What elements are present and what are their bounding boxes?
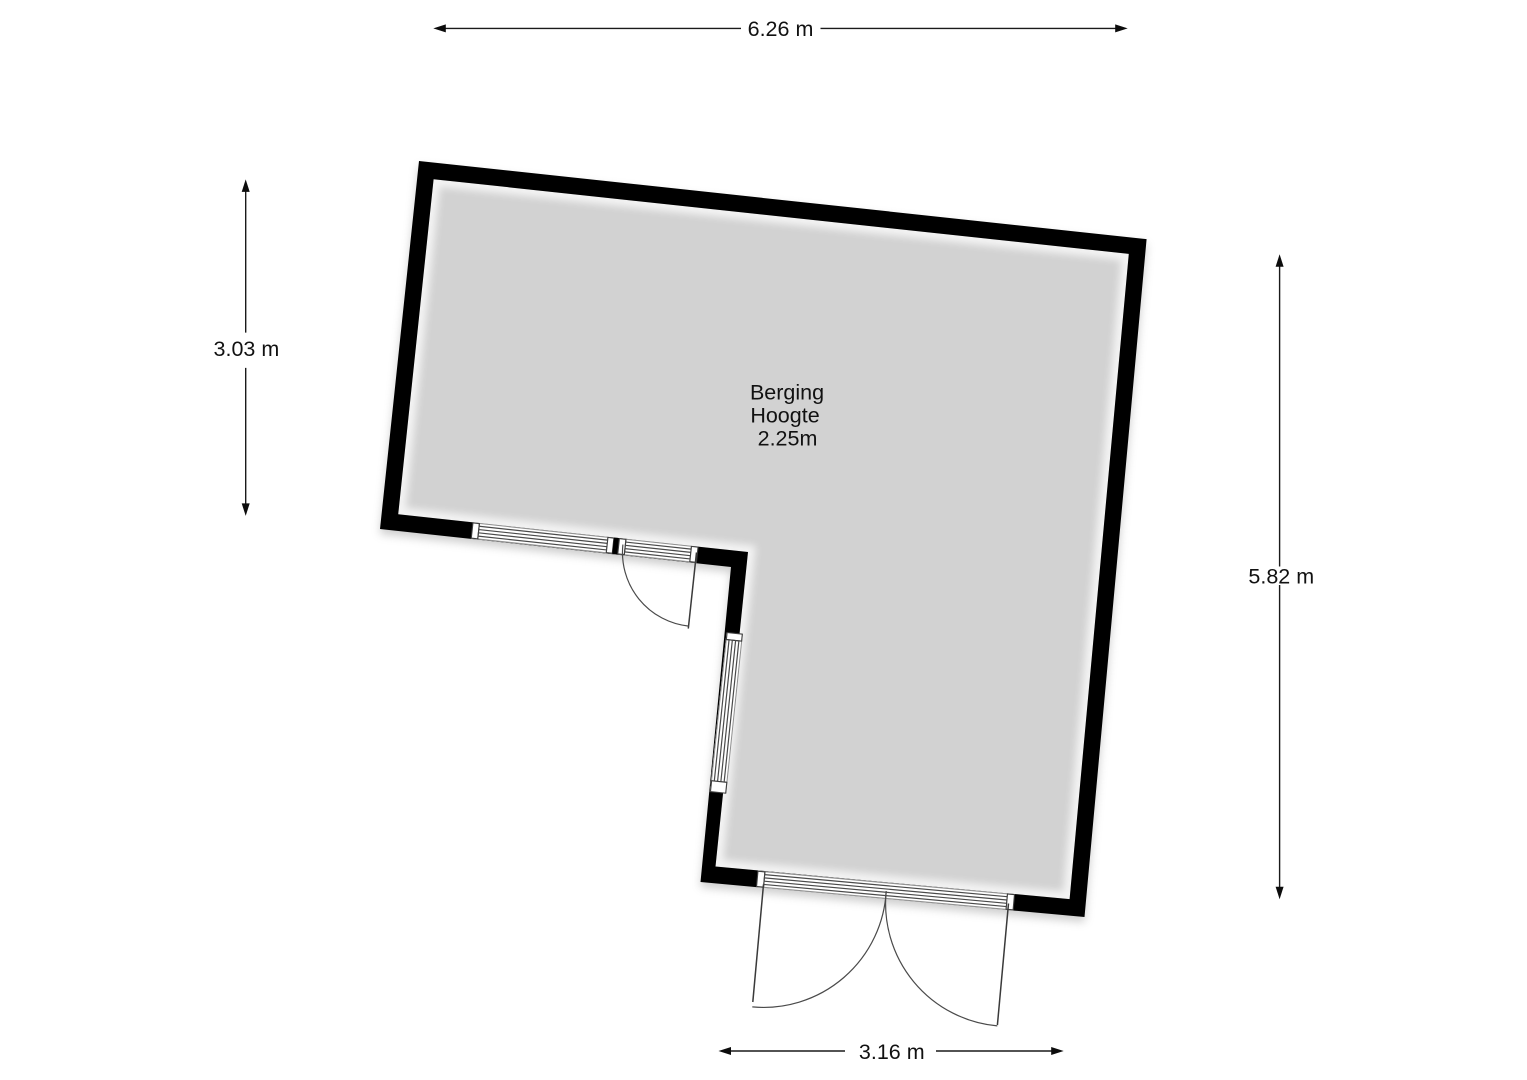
svg-text:3.03 m: 3.03 m: [214, 337, 280, 361]
svg-text:Berging: Berging: [750, 380, 824, 404]
svg-text:2.25m: 2.25m: [758, 426, 818, 450]
svg-text:6.26 m: 6.26 m: [748, 17, 814, 41]
svg-text:3.16 m: 3.16 m: [859, 1040, 925, 1064]
svg-text:Hoogte: Hoogte: [750, 403, 819, 427]
svg-text:5.82 m: 5.82 m: [1248, 564, 1314, 588]
